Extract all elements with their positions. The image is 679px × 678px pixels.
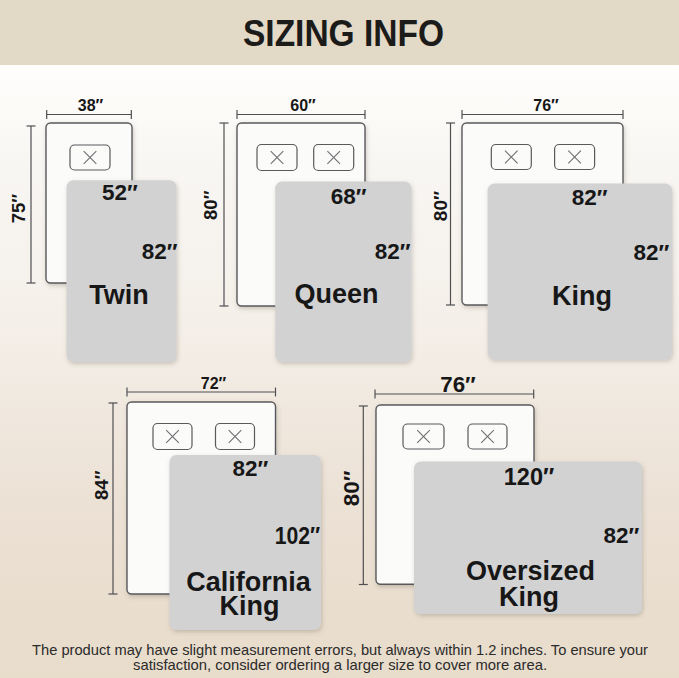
- svg-text:80″: 80″: [430, 191, 451, 221]
- svg-text:82″: 82″: [633, 240, 669, 265]
- svg-text:82″: 82″: [572, 185, 608, 210]
- svg-text:84″: 84″: [91, 470, 112, 500]
- svg-text:76″: 76″: [440, 372, 476, 397]
- svg-text:75″: 75″: [8, 194, 29, 224]
- svg-text:82″: 82″: [142, 239, 178, 264]
- svg-text:68″: 68″: [331, 184, 367, 209]
- svg-text:120″: 120″: [504, 464, 554, 490]
- svg-text:72″: 72″: [201, 375, 227, 392]
- svg-text:80″: 80″: [200, 190, 221, 220]
- svg-text:52″: 52″: [102, 180, 138, 205]
- svg-text:82″: 82″: [233, 456, 269, 481]
- svg-text:King: King: [219, 591, 279, 621]
- svg-text:60″: 60″: [290, 97, 316, 114]
- svg-text:SIZING INFO: SIZING INFO: [243, 13, 444, 54]
- svg-text:King: King: [552, 281, 612, 311]
- svg-text:Queen: Queen: [294, 279, 378, 309]
- svg-text:82″: 82″: [375, 239, 411, 264]
- svg-text:The product may have slight me: The product may have slight measurement …: [32, 642, 648, 658]
- svg-text:76″: 76″: [533, 97, 559, 114]
- svg-text:82″: 82″: [603, 523, 639, 548]
- svg-text:Twin: Twin: [89, 280, 148, 310]
- svg-text:102″: 102″: [275, 522, 321, 549]
- svg-text:80″: 80″: [339, 470, 364, 506]
- svg-text:38″: 38″: [78, 97, 104, 114]
- svg-text:satisfaction, consider orderin: satisfaction, consider ordering a larger…: [133, 657, 547, 673]
- svg-text:King: King: [499, 582, 559, 612]
